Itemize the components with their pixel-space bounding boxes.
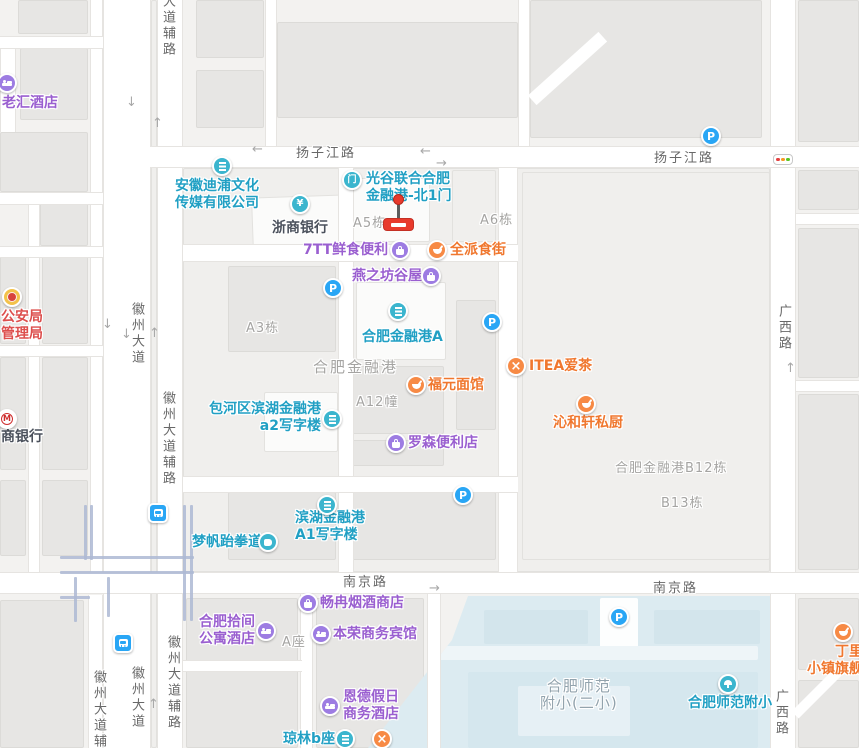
poi-laohui-hotel-label[interactable]: 老汇酒店 — [2, 95, 58, 112]
poi-label-line: ITEA爱茶 — [529, 358, 592, 375]
building-label: B13栋 — [661, 495, 703, 512]
road-label: 广西路 — [775, 304, 792, 352]
poi-label-line: 浙商银行 — [272, 220, 328, 237]
poi-hefei-shifan-primary-icon[interactable] — [718, 674, 738, 694]
construction-line — [107, 577, 110, 617]
train-glyph — [119, 639, 128, 647]
traffic-light-icon — [773, 154, 793, 165]
bed-glyph — [2, 83, 12, 86]
poi-zheshang-bank-label[interactable]: 浙商银行 — [272, 220, 328, 237]
poi-qinhexuan-kitchen-icon[interactable] — [576, 394, 596, 414]
road-label: 徽州大道辅路 — [164, 635, 181, 731]
poi-label-line: 老汇酒店 — [2, 95, 58, 112]
bag-glyph — [396, 249, 404, 255]
building-block — [798, 394, 859, 570]
bed-glyph — [261, 631, 271, 634]
building-block — [356, 282, 446, 360]
poi-hefei-financial-port-a-icon[interactable] — [388, 301, 408, 321]
poi-hefei-shijian-apartment-hotel-label[interactable]: 合肥拾间公寓酒店 — [199, 614, 255, 648]
construction-line — [60, 556, 194, 559]
building-block — [452, 170, 496, 242]
poi-7tt-fresh-convenience-label[interactable]: 7TT鲜食便利 — [303, 242, 388, 259]
road-direction-arrow: ↓ — [126, 96, 137, 109]
poi-label-line: 合肥拾间 — [199, 614, 255, 631]
poi-changran-tobacco-wine-icon[interactable] — [298, 593, 318, 613]
poi-qionglin-b-block-label[interactable]: 琼林b座 — [283, 731, 335, 748]
poi-label-line: 公寓酒店 — [199, 631, 255, 648]
poi-public-security-bureau-label[interactable]: 公安局管理局 — [1, 309, 43, 343]
road — [0, 36, 103, 49]
marker-dash — [391, 223, 406, 227]
construction-line — [74, 577, 77, 622]
poi-label-line: 畅冉烟酒商店 — [320, 595, 404, 612]
road-direction-arrow: ↑ — [148, 698, 159, 711]
poi-quanpai-food-street-icon[interactable] — [427, 240, 447, 260]
gov-glyph — [7, 292, 17, 302]
building-block — [42, 252, 88, 344]
road-direction-arrow: → — [429, 582, 440, 595]
bldg-glyph — [324, 501, 331, 510]
building-label-line: 合肥师范 — [540, 678, 618, 695]
road — [427, 594, 441, 748]
building-block — [196, 0, 264, 58]
road — [796, 380, 859, 392]
parking-icon[interactable]: P — [323, 278, 343, 298]
road — [0, 345, 103, 357]
building-block — [0, 480, 26, 556]
poi-yanzhifang-guwu-icon[interactable] — [421, 266, 441, 286]
traffic-light-dot — [781, 158, 785, 162]
parking-icon[interactable]: P — [609, 607, 629, 627]
poi-label-line: 合肥师范附小 — [688, 695, 772, 712]
poi-quanpai-food-street-label[interactable]: 全派食街 — [450, 242, 506, 259]
poi-benrong-business-hotel-label[interactable]: 本荣商务宾馆 — [333, 626, 417, 643]
poi-hefei-financial-port-a-label[interactable]: 合肥金融港A — [362, 329, 443, 346]
building-label-line: 附小(二小) — [540, 695, 618, 712]
train-glyph — [154, 509, 163, 517]
road-label: 扬子江路 — [654, 150, 714, 167]
traffic-light-dot — [786, 158, 790, 162]
map-canvas[interactable]: ↓↑←←→↓↓↑→↑↑扬子江路扬子江路南京路南京路广西路广西路大道辅路徽州大道徽… — [0, 0, 859, 748]
poi-public-security-bureau-icon[interactable] — [2, 287, 22, 307]
road-direction-arrow: ↑ — [785, 362, 796, 375]
metro-station-icon[interactable] — [148, 503, 168, 523]
bed-glyph — [316, 634, 326, 637]
building-block — [0, 132, 88, 192]
poi-mengfan-taekwondo-icon[interactable] — [258, 532, 278, 552]
construction-line — [60, 596, 90, 599]
poi-label-line: 合肥金融港A — [362, 329, 443, 346]
poi-anhui-dipu-media-icon[interactable] — [212, 156, 232, 176]
road-label: 南京路 — [653, 580, 698, 597]
poi-label-line: 金融港-北1门 — [366, 188, 452, 205]
building-label: 合肥金融港B12栋 — [615, 460, 727, 477]
bowl-glyph — [582, 403, 591, 408]
road — [796, 213, 859, 225]
poi-mengfan-taekwondo-label[interactable]: 梦帆跆拳道 — [192, 534, 262, 551]
road-label: 广西路 — [772, 689, 789, 737]
poi-label-line: 传媒有限公司 — [175, 195, 259, 212]
road-label: 徽州大道辅路 — [159, 391, 176, 487]
poi-itea-tea-label[interactable]: ITEA爱茶 — [529, 358, 592, 375]
poi-baohe-binhu-a2-tower-icon[interactable] — [322, 409, 342, 429]
road-direction-arrow: → — [436, 157, 447, 170]
school-building — [484, 610, 588, 644]
poi-zheshang-bank-icon[interactable]: ¥ — [290, 194, 310, 214]
poi-label-line: 梦帆跆拳道 — [192, 534, 262, 551]
construction-line — [60, 571, 194, 574]
road-label: 大道辅路 — [159, 0, 176, 58]
building-label: A6栋 — [480, 212, 513, 229]
poi-label-line: 福元面馆 — [428, 377, 484, 394]
bag-glyph — [392, 442, 400, 448]
building-label: A3栋 — [246, 320, 279, 337]
poi-qionglin-b-block-icon[interactable] — [335, 729, 355, 748]
cmb-glyph: M — [1, 413, 13, 425]
building-block — [18, 0, 88, 34]
building-label: 合肥金融港 — [313, 359, 398, 376]
building-label: A12幢 — [356, 394, 398, 411]
road-label: 徽州大道 — [128, 302, 145, 366]
poi-itea-tea-icon[interactable]: × — [506, 356, 526, 376]
building-block — [350, 492, 496, 560]
poi-label-line: 管理局 — [1, 326, 43, 343]
poi-ende-holiday-hotel-label[interactable]: 恩德假日商务酒店 — [343, 689, 399, 723]
poi-label-line: 琼林b座 — [283, 731, 335, 748]
building-block — [196, 70, 264, 128]
poi-label-line: 丁里羊 — [807, 644, 859, 661]
poi-guanggu-north-gate-1-label[interactable]: 光谷联合合肥金融港-北1门 — [366, 171, 452, 205]
road — [265, 0, 277, 146]
bldg-glyph — [395, 307, 402, 316]
road — [518, 0, 530, 146]
road-direction-arrow: ↑ — [152, 117, 163, 130]
school-building — [654, 610, 760, 644]
poi-label-line: 全派食街 — [450, 242, 506, 259]
parking-icon[interactable]: P — [482, 312, 502, 332]
building-label: A5栋 — [353, 215, 386, 232]
poi-benrong-business-hotel-icon[interactable] — [311, 624, 331, 644]
poi-label-line: A1写字楼 — [295, 527, 365, 544]
road-direction-arrow: ↓ — [102, 318, 113, 331]
metro-station-icon[interactable] — [113, 633, 133, 653]
poi-dingliyang-flagship-label[interactable]: 丁里羊小镇旗舰店 — [807, 644, 859, 678]
bldg-glyph — [342, 735, 349, 744]
road-label: 徽州大道 — [128, 666, 145, 730]
road — [183, 660, 302, 672]
road-label: 徽州大道辅路 — [90, 670, 107, 748]
road — [90, 0, 103, 572]
poi-label-line: 沁和轩私厨 — [553, 415, 623, 432]
poi-label-line: 商务酒店 — [343, 706, 399, 723]
road-direction-arrow: ↑ — [149, 327, 160, 340]
bed-glyph — [325, 706, 335, 709]
poi-baohe-binhu-a2-tower-label[interactable]: 包河区滨湖金融港a2写字楼 — [209, 401, 321, 435]
poi-label-line: 7TT鲜食便利 — [303, 242, 388, 259]
bldg-glyph — [219, 162, 226, 171]
poi-7tt-fresh-convenience-icon[interactable] — [390, 240, 410, 260]
building-block — [798, 0, 859, 142]
poi-ende-holiday-hotel-icon[interactable] — [320, 696, 340, 716]
poi-label-line: 本荣商务宾馆 — [333, 626, 417, 643]
poi-label-line: 罗森便利店 — [408, 435, 478, 452]
building-block — [798, 170, 859, 210]
poi-hefei-shijian-apartment-hotel-icon[interactable] — [256, 621, 276, 641]
bldg-glyph — [329, 415, 336, 424]
construction-line — [183, 505, 186, 621]
school-building — [398, 646, 758, 660]
poi-binhu-a1-tower-icon[interactable] — [317, 495, 337, 515]
poi-changran-tobacco-wine-label[interactable]: 畅冉烟酒商店 — [320, 595, 404, 612]
poi-qinhexuan-kitchen-label[interactable]: 沁和轩私厨 — [553, 415, 623, 432]
poi-label-line: a2写字楼 — [209, 418, 321, 435]
poi-yanzhifang-guwu-label[interactable]: 燕之坊谷屋 — [352, 268, 422, 285]
poi-label-line: 包河区滨湖金融港 — [209, 401, 321, 418]
building-block — [798, 680, 859, 748]
building-block — [798, 228, 859, 378]
building-block — [42, 480, 88, 556]
building-block — [228, 266, 336, 352]
road-direction-arrow: ← — [420, 145, 431, 158]
building-label: A座 — [282, 634, 306, 651]
poi-fuyuan-noodles-label[interactable]: 福元面馆 — [428, 377, 484, 394]
building-block — [42, 357, 88, 470]
poi-label-line: 商银行 — [1, 429, 43, 446]
poi-hefei-shifan-primary-label[interactable]: 合肥师范附小 — [688, 695, 772, 712]
poi-label-line: 燕之坊谷屋 — [352, 268, 422, 285]
poi-fuyuan-noodles-icon[interactable] — [406, 375, 426, 395]
marker-ball — [393, 194, 404, 205]
poi-label-line: 光谷联合合肥 — [366, 171, 452, 188]
parking-icon[interactable]: P — [701, 126, 721, 146]
road-direction-arrow: ← — [252, 143, 263, 156]
poi-cmb-bank-label[interactable]: 商银行 — [1, 429, 43, 446]
construction-line — [84, 505, 87, 560]
traffic-light-dot — [776, 158, 780, 162]
poi-lawson-convenience-icon[interactable] — [386, 433, 406, 453]
marker-base — [383, 218, 414, 231]
bag-glyph — [427, 275, 435, 281]
poi-dingliyang-flagship-icon[interactable] — [833, 622, 853, 642]
poi-label-line: 小镇旗舰店 — [807, 661, 859, 678]
poi-binhu-a1-tower-label[interactable]: 滨湖金融港A1写字楼 — [295, 510, 365, 544]
bowl-glyph — [412, 384, 421, 389]
poi-anhui-dipu-media-label[interactable]: 安徽迪浦文化传媒有限公司 — [175, 178, 259, 212]
poi-guanggu-north-gate-1-icon[interactable]: 门 — [342, 170, 362, 190]
poi-restaurant-unnamed-icon[interactable]: × — [372, 729, 392, 748]
construction-line — [190, 505, 193, 621]
building-label: 合肥师范附小(二小) — [540, 678, 618, 712]
road-label: 扬子江路 — [296, 145, 356, 162]
road — [0, 246, 103, 258]
poi-lawson-convenience-label[interactable]: 罗森便利店 — [408, 435, 478, 452]
fist-glyph — [264, 539, 272, 546]
bowl-glyph — [839, 631, 848, 636]
building-block — [0, 600, 84, 748]
poi-label-line: 安徽迪浦文化 — [175, 178, 259, 195]
bowl-glyph — [433, 249, 442, 254]
poi-label-line: 公安局 — [1, 309, 43, 326]
building-block — [277, 22, 518, 118]
road — [0, 192, 103, 205]
parking-icon[interactable]: P — [453, 485, 473, 505]
tree-glyph — [724, 680, 732, 685]
road-label: 南京路 — [343, 574, 388, 591]
poi-label-line: 恩德假日 — [343, 689, 399, 706]
bag-glyph — [304, 602, 312, 608]
construction-line — [90, 505, 93, 560]
